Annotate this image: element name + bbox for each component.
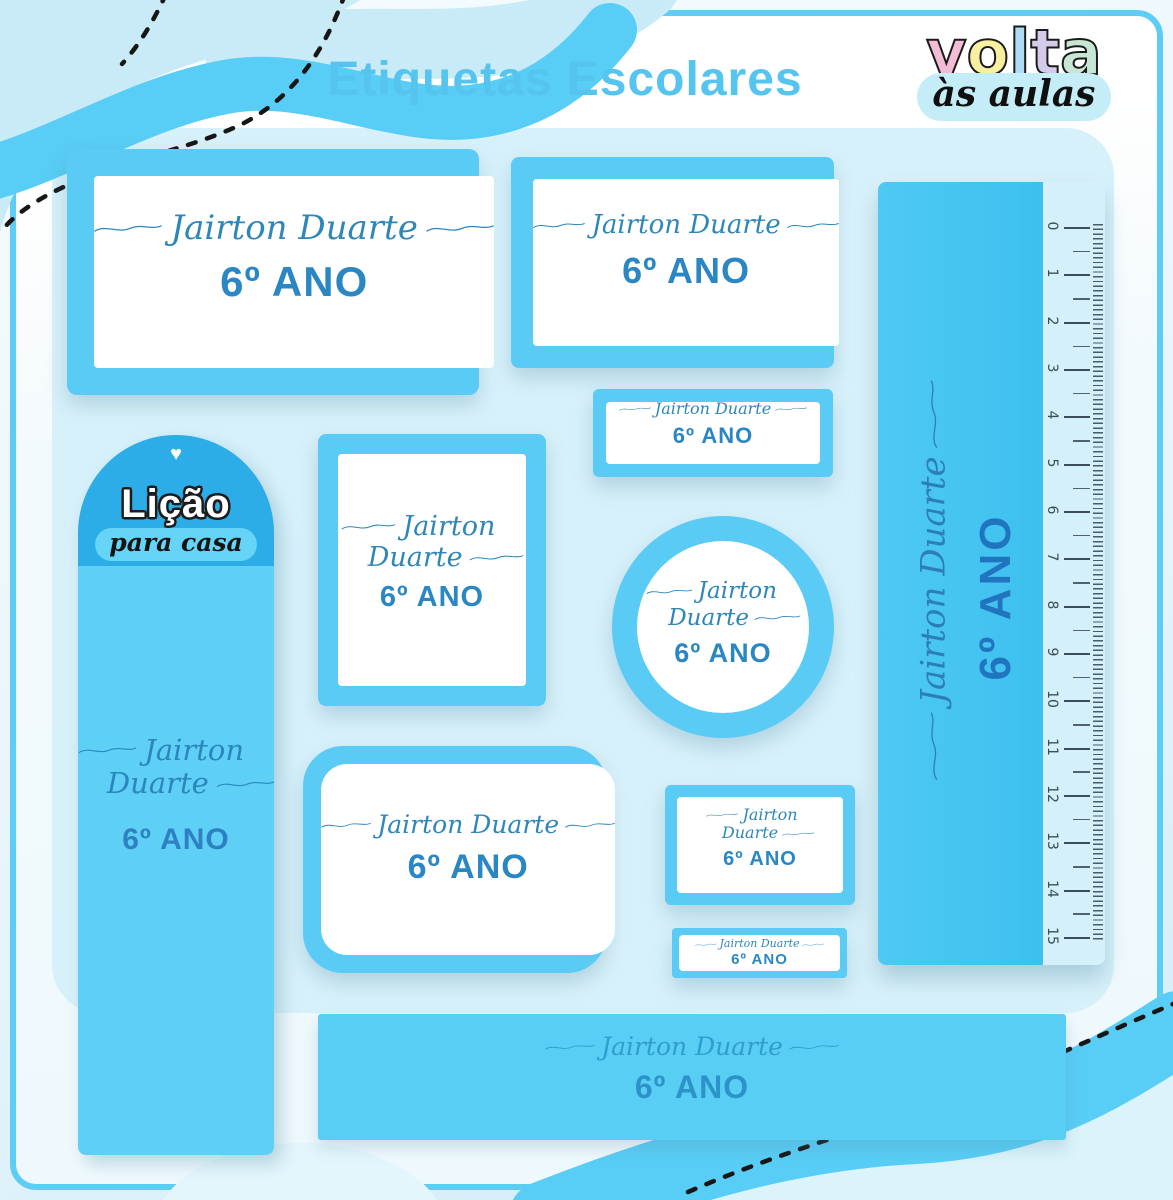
grade-label: 6º ANO [220, 258, 368, 306]
ruler-number: 0 [1044, 213, 1060, 239]
name-text: Jairton Duarte [377, 811, 559, 840]
ruler-tick-major [1064, 890, 1090, 892]
flourish-icon [926, 712, 943, 780]
flourish-icon [565, 819, 615, 832]
ruler-tick-major [1064, 274, 1090, 276]
grade-label: 6º ANO [635, 1069, 749, 1106]
ruler-tick-medium [1073, 535, 1090, 537]
name-text: Duarte [107, 767, 209, 800]
flourish-icon [755, 612, 801, 624]
ruler-tick-medium [1073, 298, 1090, 300]
ruler-tick-medium [1073, 488, 1090, 490]
ruler-tick-major [1064, 795, 1090, 797]
flourish-icon [94, 220, 162, 237]
flourish-icon [321, 819, 371, 832]
ruler-tick-major [1064, 227, 1090, 229]
flourish-icon [706, 811, 738, 819]
flourish-icon [342, 520, 396, 534]
label-small: Jairton Duarte 6º ANO [665, 785, 855, 905]
ruler-student-name: Jairton Duarte [914, 380, 953, 780]
ruler: Jairton Duarte 6º ANO 012345678910111213… [878, 182, 1105, 965]
ruler-tick-major [1064, 606, 1090, 608]
ruler-number: 1 [1044, 260, 1060, 286]
student-name: Jairton Duarte [94, 209, 494, 248]
label-inner: Jairton Duarte 6º ANO [637, 541, 809, 713]
ruler-grade-label: 6º ANO [971, 514, 1021, 681]
student-name: Jairton Duarte [545, 1033, 839, 1062]
flourish-icon [789, 1041, 839, 1054]
name-text: Jairton Duarte [655, 400, 771, 418]
ruler-tick-medium [1073, 630, 1090, 632]
flourish-icon [79, 743, 137, 758]
ruler-body: Jairton Duarte 6º ANO [878, 182, 1043, 965]
ruler-number: 3 [1044, 355, 1060, 381]
ruler-number: 14 [1044, 876, 1060, 902]
student-name: Jairton Duarte [619, 400, 807, 418]
ruler-number: 4 [1044, 402, 1060, 428]
ruler-tick-major [1064, 464, 1090, 466]
flourish-icon [533, 219, 585, 232]
ruler-tick-medium [1073, 677, 1090, 679]
ruler-tick-medium [1073, 724, 1090, 726]
student-name: Jairton Duarte [354, 511, 510, 573]
flourish-icon [787, 219, 839, 232]
label-rounded: Jairton Duarte 6º ANO [303, 746, 607, 973]
grade-label: 6º ANO [673, 423, 753, 449]
ruler-number: 9 [1044, 639, 1060, 665]
ruler-tick-major [1064, 748, 1090, 750]
name-text: Duarte [668, 605, 749, 631]
name-text: Jairton [742, 806, 797, 824]
ruler-number: 2 [1044, 308, 1060, 334]
label-inner: Jairton Duarte 6º ANO [679, 935, 840, 971]
label-inner: Jairton Duarte 6º ANO [606, 402, 820, 464]
ruler-tick-medium [1073, 819, 1090, 821]
ruler-tick-major [1064, 558, 1090, 560]
ruler-number: 5 [1044, 450, 1060, 476]
logo-subtitle: às aulas [917, 73, 1112, 121]
ruler-tick-major [1064, 511, 1090, 513]
ruler-number: 6 [1044, 497, 1060, 523]
name-text: Jairton [144, 734, 244, 767]
label-small-wide: Jairton Duarte 6º ANO [593, 389, 833, 477]
student-name: Jairton Duarte [92, 734, 259, 801]
ruler-tick-major [1064, 700, 1090, 702]
student-name: Jairton Duarte [714, 806, 806, 843]
name-text: Jairton [402, 511, 495, 542]
ruler-tick-medium [1073, 440, 1090, 442]
page-title: Etiquetas Escolares [240, 52, 890, 107]
flourish-icon [775, 405, 807, 413]
label-inner: Jairton Duarte 6º ANO [677, 797, 843, 893]
ruler-tick-medium [1073, 251, 1090, 253]
ruler-number: 10 [1044, 686, 1060, 712]
label-mini: Jairton Duarte 6º ANO [672, 928, 847, 978]
ruler-tick-medium [1073, 866, 1090, 868]
label-inner: Jairton Duarte 6º ANO [533, 179, 839, 346]
flourish-icon [469, 551, 523, 565]
bookmark-header: ♥ Lição para casa [78, 435, 274, 566]
name-text: Jairton Duarte [914, 456, 953, 703]
student-name: Jairton Duarte [695, 938, 825, 951]
ruler-number: 11 [1044, 734, 1060, 760]
name-text: Jairton Duarte [171, 209, 418, 248]
grade-label: 6º ANO [380, 581, 484, 614]
heart-icon: ♥ [170, 444, 182, 464]
bookmark-title: Lição [121, 483, 230, 525]
grade-label: 6º ANO [622, 250, 750, 292]
ruler-tick-major [1064, 937, 1090, 939]
ruler-tick-major [1064, 416, 1090, 418]
name-text: Duarte [368, 542, 463, 573]
label-xl: Jairton Duarte 6º ANO [67, 149, 479, 395]
ruler-number: 12 [1044, 781, 1060, 807]
name-text: Jairton [698, 578, 777, 604]
ruler-number: 7 [1044, 544, 1060, 570]
name-text: Jairton Duarte [592, 211, 781, 241]
label-square: Jairton Duarte 6º ANO [318, 434, 546, 706]
flourish-icon [782, 830, 814, 838]
ruler-mm-ticks [1093, 224, 1103, 942]
ruler-scale: 0123456789101112131415 [1043, 182, 1105, 965]
student-name: Jairton Duarte [321, 811, 615, 840]
flyer-page: Etiquetas Escolares volta às aulas Jairt… [0, 0, 1173, 1200]
flourish-icon [926, 380, 943, 448]
grade-label: 6º ANO [408, 848, 529, 887]
ruler-tick-major [1064, 322, 1090, 324]
grade-label: 6º ANO [723, 848, 797, 871]
flourish-icon [216, 777, 274, 792]
grade-label: 6º ANO [731, 951, 788, 968]
bookmark-subtitle: para casa [95, 528, 256, 561]
label-inner: Jairton Duarte 6º ANO [321, 764, 615, 955]
ruler-tick-medium [1073, 771, 1090, 773]
name-text: Jairton Duarte [719, 938, 799, 951]
bookmark: ♥ Lição para casa Jairton Duarte 6º ANO [78, 435, 274, 1155]
flourish-icon [545, 1041, 595, 1054]
flourish-icon [695, 942, 717, 948]
label-inner: Jairton Duarte 6º ANO [318, 1014, 1066, 1140]
ruler-number: 8 [1044, 592, 1060, 618]
ruler-tick-medium [1073, 582, 1090, 584]
ruler-tick-major [1064, 653, 1090, 655]
label-strip: Jairton Duarte 6º ANO [318, 1014, 1066, 1140]
ruler-tick-major [1064, 842, 1090, 844]
flourish-icon [426, 220, 494, 237]
ruler-number: 13 [1044, 828, 1060, 854]
ruler-tick-medium [1073, 913, 1090, 915]
label-top: Jairton Duarte 6º ANO [511, 157, 834, 368]
flourish-icon [802, 942, 824, 948]
flourish-icon [646, 586, 692, 598]
name-text: Jairton Duarte [601, 1033, 783, 1062]
ruler-number: 15 [1044, 923, 1060, 949]
grade-label: 6º ANO [674, 638, 771, 669]
label-inner: Jairton Duarte 6º ANO [338, 454, 526, 686]
name-text: Duarte [722, 824, 778, 842]
grade-label: 6º ANO [122, 823, 230, 857]
student-name: Jairton Duarte [657, 578, 790, 631]
flourish-icon [619, 405, 651, 413]
student-name: Jairton Duarte [533, 211, 839, 241]
ruler-tick-medium [1073, 393, 1090, 395]
volta-as-aulas-logo: volta às aulas [886, 24, 1142, 121]
ruler-tick-medium [1073, 346, 1090, 348]
ruler-tick-major [1064, 369, 1090, 371]
label-inner: Jairton Duarte 6º ANO [94, 176, 494, 368]
label-circle: Jairton Duarte 6º ANO [612, 516, 834, 738]
bookmark-body: Jairton Duarte 6º ANO [78, 566, 274, 1155]
